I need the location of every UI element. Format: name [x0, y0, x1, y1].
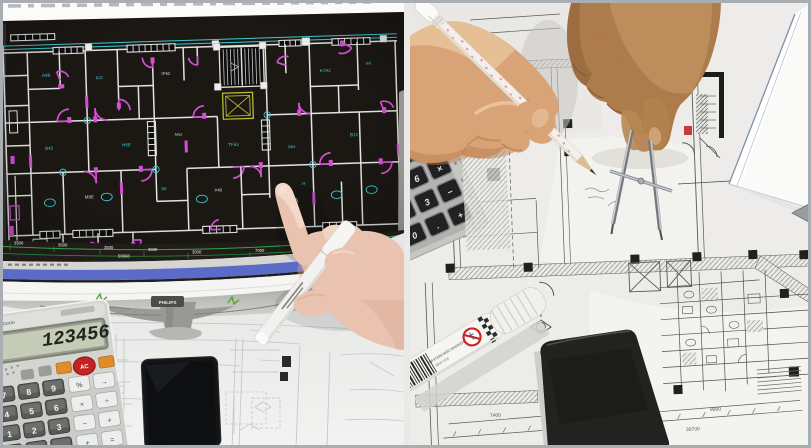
svg-text:3500: 3500 — [104, 245, 114, 250]
svg-text:3500: 3500 — [14, 240, 24, 245]
svg-text:PHILIPS: PHILIPS — [159, 300, 177, 305]
svg-text:%: % — [76, 382, 83, 390]
svg-text:7000: 7000 — [255, 248, 265, 253]
svg-text:30700: 30700 — [686, 426, 700, 433]
svg-text:3500: 3500 — [192, 249, 202, 254]
svg-text:→: → — [100, 378, 108, 386]
svg-text:3500: 3500 — [58, 243, 68, 248]
svg-text:3500: 3500 — [148, 247, 158, 252]
svg-text:7400: 7400 — [490, 412, 502, 419]
svg-text:56908: 56908 — [118, 253, 130, 258]
svg-text:9000: 9000 — [710, 406, 722, 413]
